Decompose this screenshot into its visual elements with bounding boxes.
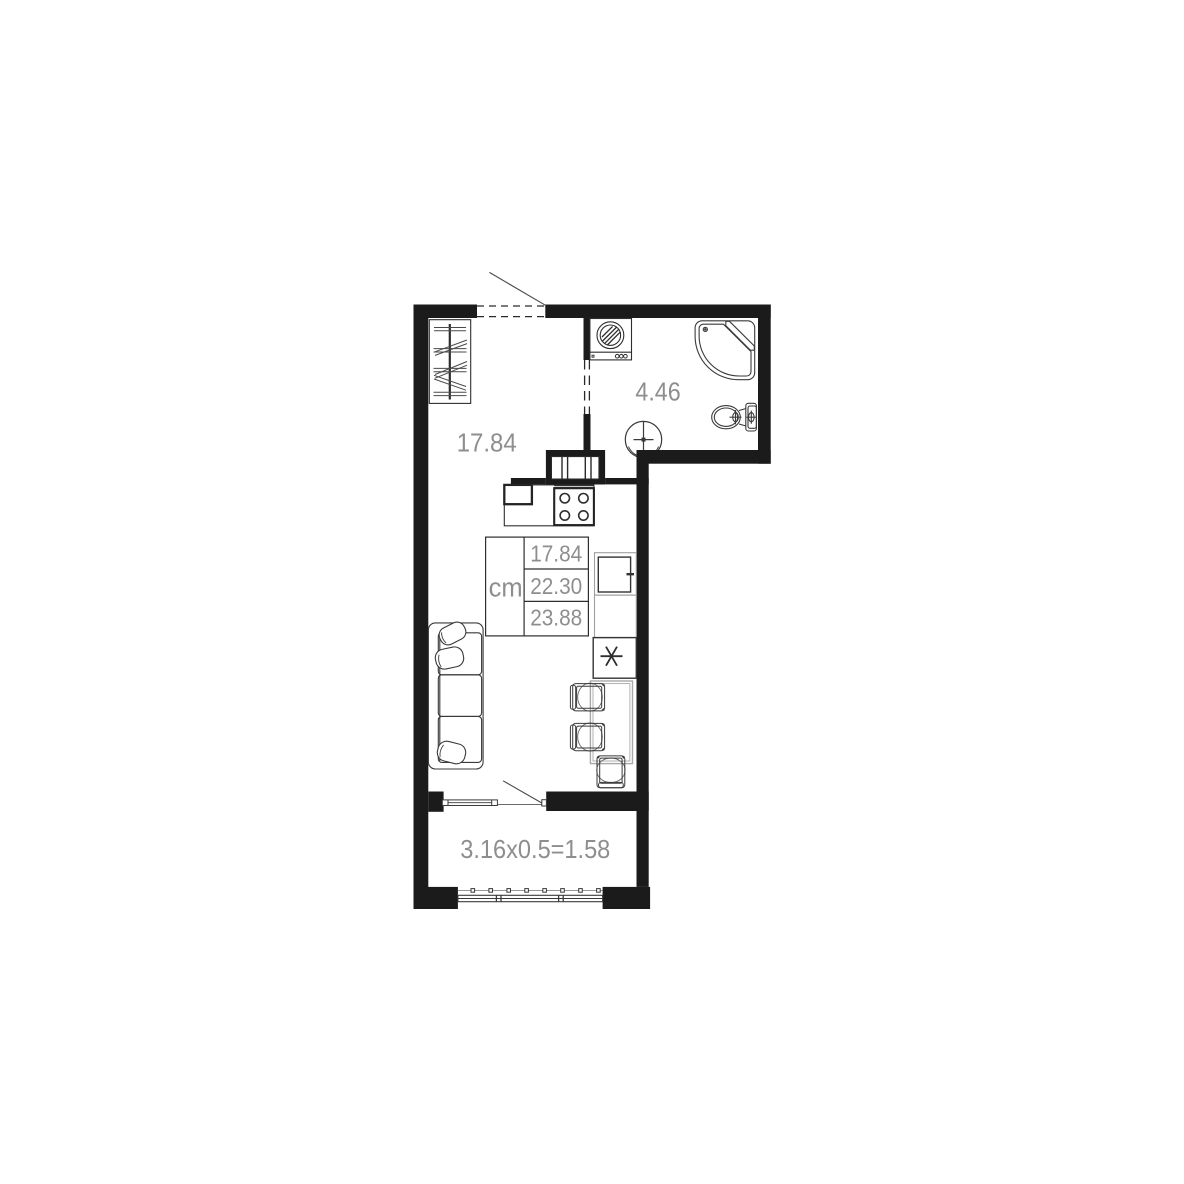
svg-text:cm: cm [489, 572, 523, 602]
svg-text:17.84: 17.84 [457, 427, 517, 457]
svg-text:4.46: 4.46 [635, 376, 680, 406]
svg-text:17.84: 17.84 [530, 540, 582, 566]
svg-text:23.88: 23.88 [530, 604, 582, 630]
svg-text:3.16x0.5=1.58: 3.16x0.5=1.58 [460, 834, 610, 864]
svg-text:22.30: 22.30 [530, 573, 582, 599]
